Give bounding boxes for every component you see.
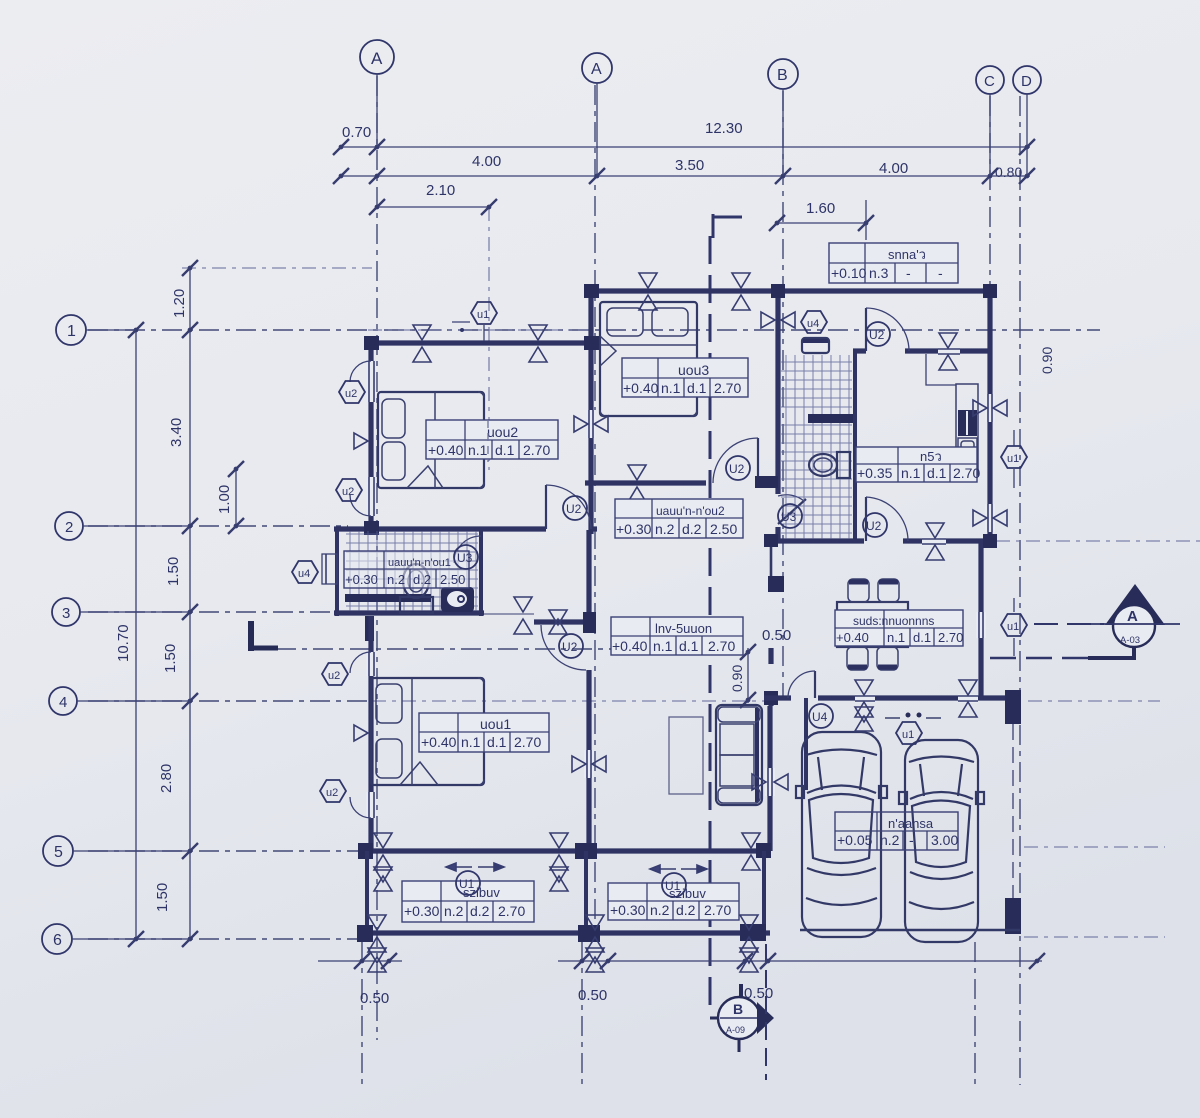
- svg-text:D: D: [1021, 73, 1032, 90]
- svg-text:+0.35: +0.35: [857, 465, 893, 481]
- svg-text:lnv-5uuon: lnv-5uuon: [655, 621, 712, 636]
- svg-text:0.80: 0.80: [995, 164, 1022, 180]
- svg-text:suds:nnuonnns: suds:nnuonnns: [853, 614, 934, 628]
- svg-text:u2: u2: [328, 670, 340, 682]
- svg-text:+0.30: +0.30: [345, 572, 378, 587]
- svg-text:3.50: 3.50: [675, 157, 704, 174]
- svg-text:d.1: d.1: [495, 442, 515, 458]
- svg-text:snna'ว: snna'ว: [888, 247, 926, 262]
- svg-text:2.70: 2.70: [514, 734, 541, 750]
- svg-text:2.70: 2.70: [938, 630, 963, 645]
- svg-text:d.2: d.2: [676, 902, 696, 918]
- svg-text:d.2: d.2: [470, 903, 490, 919]
- svg-text:d.1: d.1: [679, 638, 699, 654]
- svg-text:n5ว: n5ว: [920, 449, 942, 464]
- svg-text:n.1: n.1: [468, 442, 488, 458]
- svg-text:3: 3: [62, 605, 70, 622]
- svg-text:2: 2: [65, 519, 73, 536]
- svg-text:uou3: uou3: [678, 362, 709, 378]
- svg-text:6: 6: [53, 932, 62, 949]
- svg-text:u4: u4: [807, 318, 819, 330]
- svg-text:1.00: 1.00: [216, 485, 233, 514]
- svg-text:+0.10: +0.10: [831, 265, 867, 281]
- svg-text:u1: u1: [477, 309, 489, 321]
- svg-text:1.50: 1.50: [165, 557, 182, 586]
- svg-text:A-09: A-09: [726, 1025, 745, 1035]
- svg-text:u2: u2: [345, 388, 357, 400]
- svg-text:n.3: n.3: [869, 265, 889, 281]
- svg-text:1.20: 1.20: [171, 289, 188, 318]
- svg-text:0.50: 0.50: [578, 987, 607, 1004]
- svg-text:2.70: 2.70: [708, 638, 735, 654]
- svg-text:+0.30: +0.30: [610, 902, 646, 918]
- svg-text:1.60: 1.60: [806, 200, 835, 217]
- svg-text:2.70: 2.70: [714, 380, 741, 396]
- svg-text:u2: u2: [326, 787, 338, 799]
- svg-text:d.1: d.1: [927, 465, 947, 481]
- svg-text:B: B: [777, 67, 788, 84]
- svg-text:n'aansa: n'aansa: [888, 816, 934, 831]
- svg-text:+0.40: +0.40: [428, 442, 464, 458]
- svg-text:1: 1: [67, 323, 76, 340]
- svg-text:d.1: d.1: [913, 630, 931, 645]
- svg-text:0.70: 0.70: [342, 124, 371, 141]
- svg-text:d.1: d.1: [487, 734, 507, 750]
- svg-text:A: A: [591, 61, 602, 78]
- svg-text:2.70: 2.70: [704, 902, 731, 918]
- svg-text:u1: u1: [1007, 621, 1019, 633]
- svg-text:0.50: 0.50: [744, 985, 773, 1002]
- svg-text:U1: U1: [459, 877, 475, 891]
- svg-text:4: 4: [59, 694, 67, 711]
- svg-text:d.2: d.2: [413, 572, 431, 587]
- svg-text:U3: U3: [781, 510, 797, 524]
- svg-text:u4: u4: [298, 568, 310, 580]
- svg-text:3.40: 3.40: [168, 418, 185, 447]
- svg-text:U3: U3: [457, 551, 473, 565]
- svg-text:2.50: 2.50: [440, 572, 465, 587]
- svg-text:+0.40: +0.40: [836, 630, 869, 645]
- svg-text:n.2: n.2: [444, 903, 464, 919]
- svg-text:U2: U2: [866, 519, 882, 533]
- svg-text:3.00: 3.00: [931, 832, 958, 848]
- svg-text:-: -: [909, 832, 914, 848]
- svg-text:C: C: [984, 73, 995, 90]
- svg-text:4.00: 4.00: [879, 160, 908, 177]
- svg-text:1.50: 1.50: [154, 883, 171, 912]
- svg-text:-: -: [906, 265, 911, 281]
- svg-text:1.50: 1.50: [162, 644, 179, 673]
- svg-text:uauu'n-n'ou1: uauu'n-n'ou1: [388, 557, 451, 569]
- svg-text:0.90: 0.90: [1039, 347, 1055, 374]
- svg-text:n.1: n.1: [653, 638, 673, 654]
- svg-text:u1: u1: [902, 729, 914, 741]
- svg-text:U2: U2: [566, 502, 582, 516]
- svg-text:U2: U2: [562, 640, 578, 654]
- svg-text:+0.40: +0.40: [421, 734, 457, 750]
- svg-text:n.1: n.1: [661, 380, 681, 396]
- svg-text:+0.05: +0.05: [837, 832, 873, 848]
- svg-text:2.10: 2.10: [426, 182, 455, 199]
- svg-text:U2: U2: [869, 328, 885, 342]
- svg-text:u1: u1: [1007, 453, 1019, 465]
- svg-text:u2: u2: [342, 486, 354, 498]
- svg-text:0.50: 0.50: [360, 990, 389, 1007]
- svg-text:n.2: n.2: [655, 521, 675, 537]
- svg-text:uou2: uou2: [487, 424, 518, 440]
- svg-text:n.1: n.1: [887, 630, 905, 645]
- svg-text:2.70: 2.70: [953, 465, 980, 481]
- svg-text:+0.30: +0.30: [404, 903, 440, 919]
- svg-text:uauu'n-n'ou2: uauu'n-n'ou2: [656, 504, 725, 518]
- svg-text:n.2: n.2: [387, 572, 405, 587]
- svg-text:+0.40: +0.40: [623, 380, 659, 396]
- svg-text:U2: U2: [729, 462, 745, 476]
- svg-text:12.30: 12.30: [705, 120, 743, 137]
- svg-text:5: 5: [54, 844, 63, 861]
- svg-text:2.70: 2.70: [498, 903, 525, 919]
- svg-text:uou1: uou1: [480, 716, 511, 732]
- svg-text:-: -: [938, 265, 943, 281]
- svg-text:d.2: d.2: [682, 521, 702, 537]
- svg-text:n.1: n.1: [901, 465, 921, 481]
- svg-text:+0.40: +0.40: [612, 638, 648, 654]
- svg-text:n.1: n.1: [461, 734, 481, 750]
- svg-text:4.00: 4.00: [472, 153, 501, 170]
- svg-text:A: A: [1127, 608, 1138, 625]
- svg-text:A: A: [371, 49, 383, 68]
- svg-text:10.70: 10.70: [115, 624, 132, 662]
- svg-text:n.2: n.2: [880, 832, 900, 848]
- svg-text:0.90: 0.90: [729, 665, 745, 692]
- svg-text:2.80: 2.80: [158, 764, 175, 793]
- svg-text:2.70: 2.70: [523, 442, 550, 458]
- svg-text:U1: U1: [665, 879, 681, 893]
- svg-text:U4: U4: [812, 710, 828, 724]
- svg-text:d.1: d.1: [687, 380, 707, 396]
- svg-text:n.2: n.2: [650, 902, 670, 918]
- svg-text:2.50: 2.50: [710, 521, 737, 537]
- svg-text:0.50: 0.50: [762, 627, 791, 644]
- svg-text:B: B: [733, 1001, 743, 1017]
- svg-text:+0.30: +0.30: [616, 521, 652, 537]
- svg-text:A-03: A-03: [1120, 635, 1140, 646]
